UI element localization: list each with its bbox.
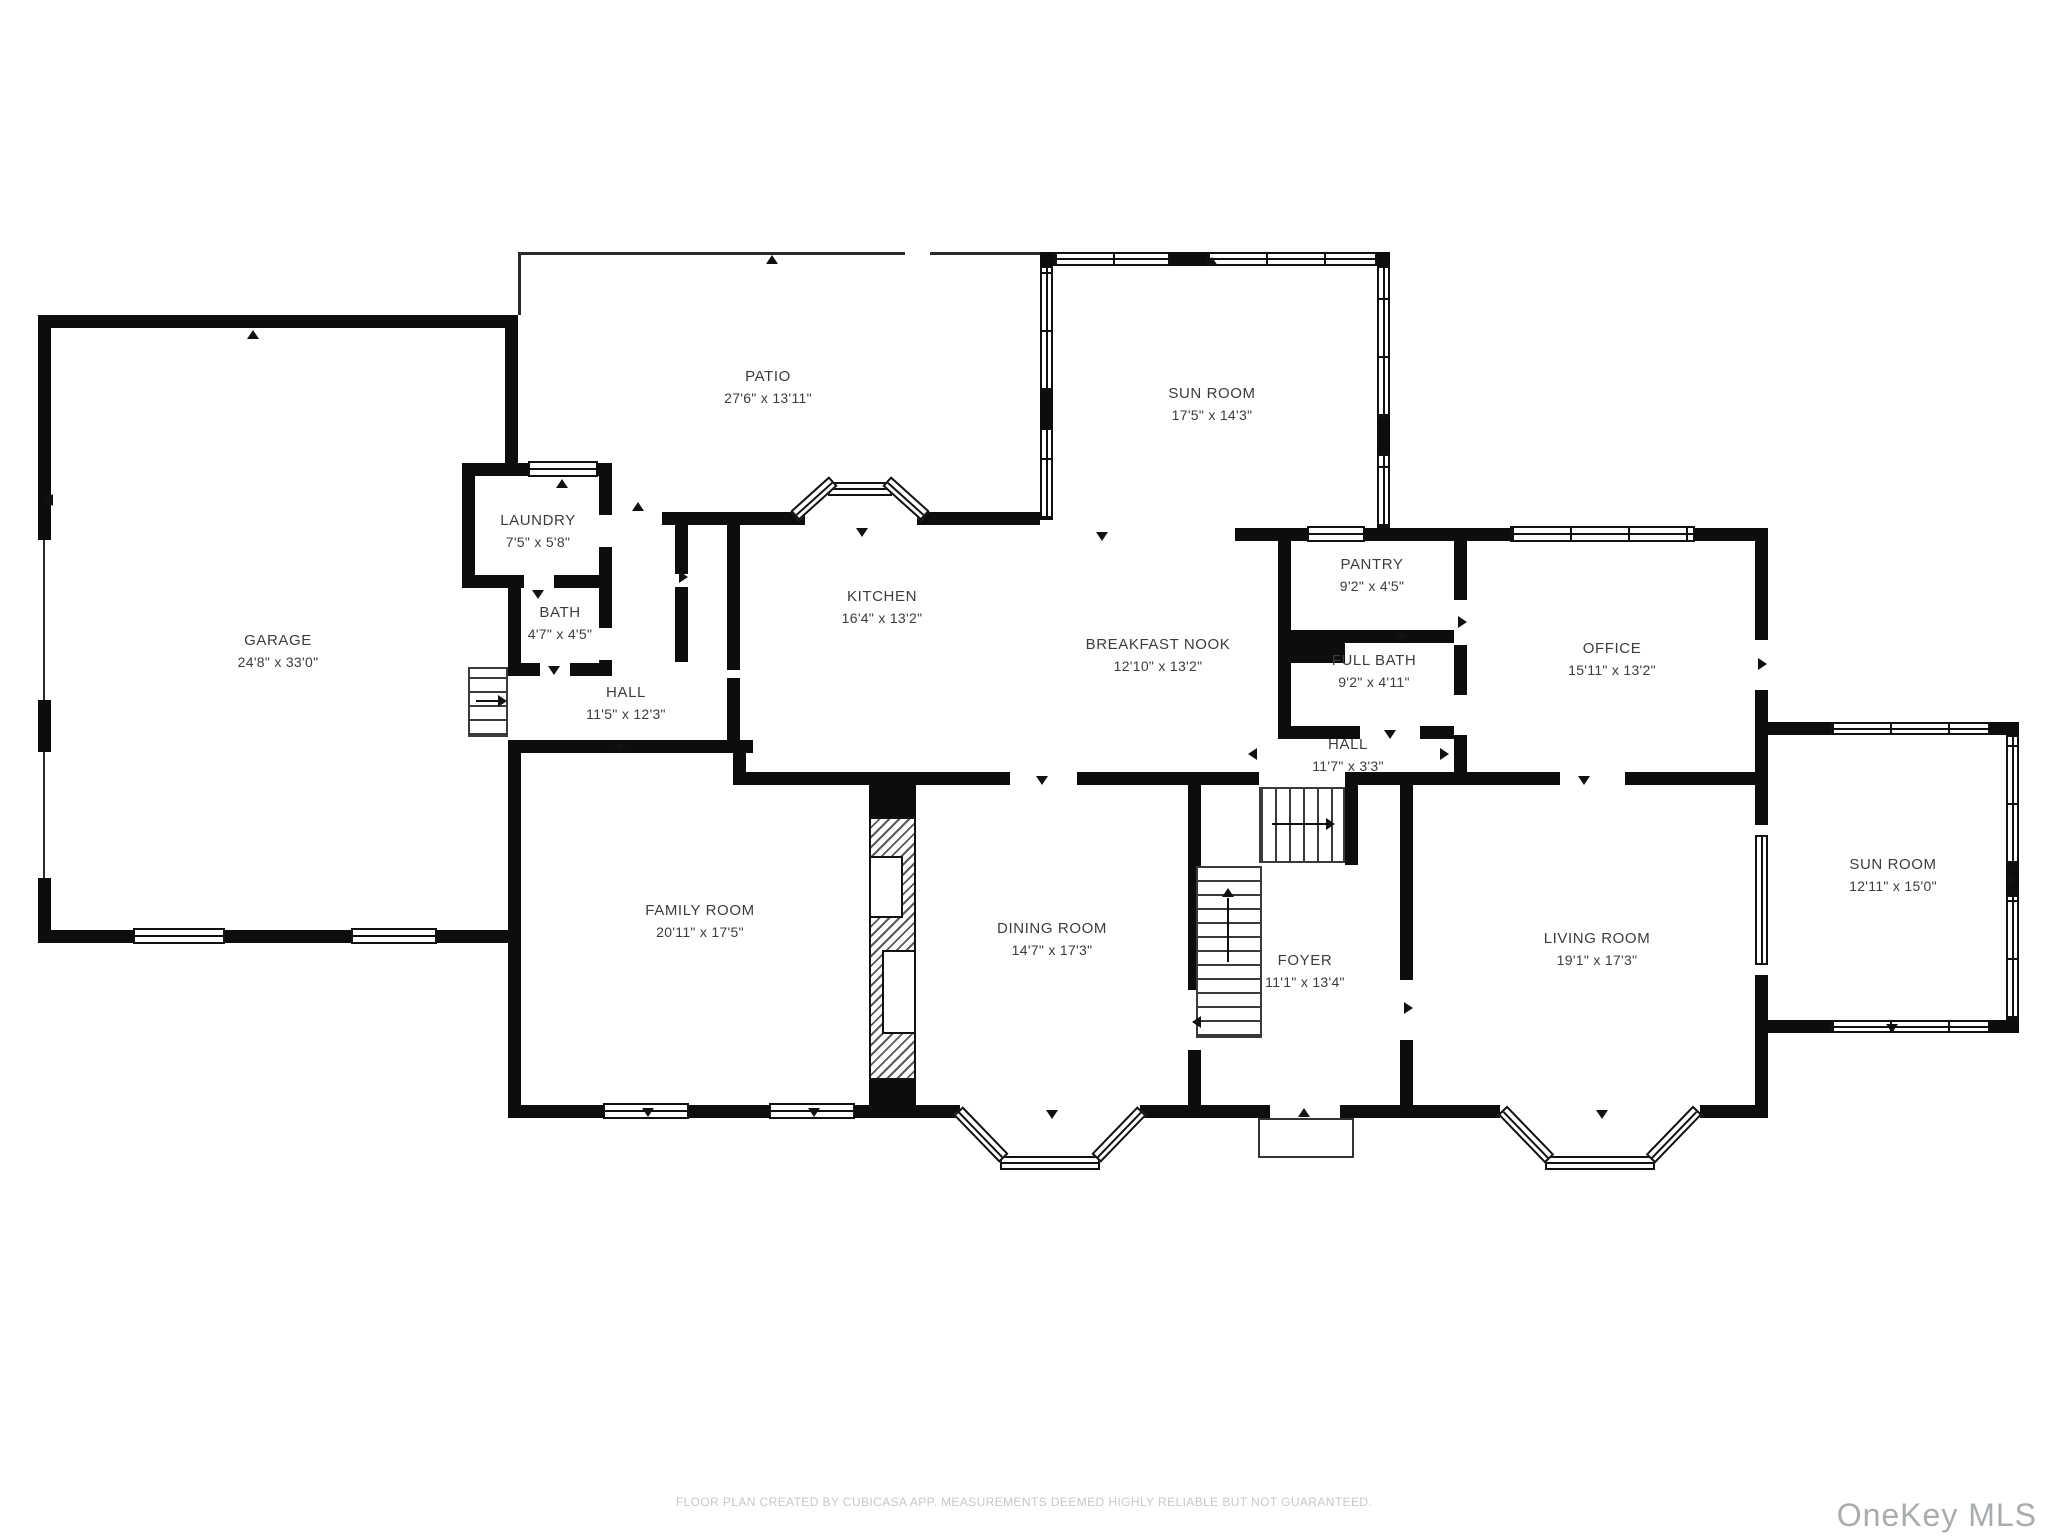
door-marker — [548, 666, 560, 675]
wall — [437, 930, 518, 943]
room-dims: 12'11" x 15'0" — [1849, 878, 1937, 894]
room-name: HALL — [586, 684, 666, 701]
stairs-arrow — [1227, 898, 1229, 962]
office-window — [1510, 526, 1695, 542]
room-name: DINING ROOM — [997, 920, 1107, 937]
wall — [1755, 528, 1768, 640]
wall — [225, 930, 351, 943]
room-dims: 9'2" x 4'11" — [1332, 674, 1417, 690]
door-marker — [856, 528, 868, 537]
wall — [508, 740, 521, 1118]
sunroom-window — [2006, 735, 2019, 865]
room-dims: 27'6" x 13'11" — [724, 390, 812, 406]
patio-edge — [521, 252, 905, 255]
room-label-sunroom-top: SUN ROOM 17'5" x 14'3" — [1168, 385, 1255, 423]
wall — [505, 315, 518, 465]
wall — [462, 463, 528, 476]
wall — [1140, 1105, 1270, 1118]
floor-plan: GARAGE 24'8" x 33'0" PATIO 27'6" x 13'11… — [0, 0, 2048, 1536]
door-marker — [1396, 634, 1408, 643]
room-dims: 7'5" x 5'8" — [500, 534, 576, 550]
wall — [570, 663, 612, 676]
wall — [599, 588, 612, 628]
wall — [462, 463, 475, 588]
wall — [1768, 1020, 1830, 1033]
wall — [1188, 1050, 1201, 1105]
fireplace-box — [869, 856, 903, 918]
wall — [869, 785, 916, 817]
door-marker — [808, 1108, 820, 1117]
wall — [662, 512, 805, 525]
room-label-full-bath: FULL BATH 9'2" x 4'11" — [1332, 652, 1417, 690]
room-name: FOYER — [1265, 952, 1345, 969]
door-marker — [44, 494, 53, 506]
wall-opening-line — [43, 540, 45, 700]
room-name: HALL — [1312, 736, 1384, 753]
sunroom-window — [1830, 1020, 1990, 1033]
room-label-living-room: LIVING ROOM 19'1" x 17'3" — [1544, 930, 1651, 968]
wall — [38, 930, 133, 943]
room-name: KITCHEN — [842, 588, 923, 605]
room-dims: 14'7" x 17'3" — [997, 942, 1107, 958]
wall — [727, 678, 740, 753]
door-marker — [1578, 776, 1590, 785]
stairs-arrow-head — [1326, 818, 1335, 830]
wall — [1040, 252, 1053, 266]
patio-edge — [518, 252, 521, 315]
room-label-garage: GARAGE 24'8" x 33'0" — [238, 632, 319, 670]
wall — [1365, 528, 1510, 541]
room-name: LAUNDRY — [500, 512, 576, 529]
door-marker — [2008, 874, 2017, 886]
wall — [38, 700, 51, 752]
wall — [1040, 392, 1053, 428]
room-dims: 11'1" x 13'4" — [1265, 974, 1345, 990]
room-dims: 16'4" x 13'2" — [842, 610, 923, 626]
room-name: FAMILY ROOM — [645, 902, 754, 919]
wall — [727, 522, 740, 670]
door-marker — [1192, 1016, 1201, 1028]
kitchen-bay-window — [790, 476, 837, 520]
wall — [1755, 690, 1768, 785]
room-dims: 19'1" x 17'3" — [1544, 952, 1651, 968]
room-label-laundry: LAUNDRY 7'5" x 5'8" — [500, 512, 576, 550]
pantry-window — [1307, 526, 1365, 542]
wall — [1377, 252, 1390, 266]
wall — [554, 575, 612, 588]
door-marker — [1096, 532, 1108, 541]
wall — [689, 1105, 769, 1118]
sunroom-window — [1830, 722, 1990, 735]
wall — [1400, 785, 1413, 980]
patio-edge — [930, 252, 1040, 255]
door-marker — [1298, 1108, 1310, 1117]
door-marker — [642, 1108, 654, 1117]
door-marker — [1384, 730, 1396, 739]
wall — [38, 315, 51, 540]
sunroom-window — [2006, 895, 2019, 1020]
wall — [1420, 726, 1454, 739]
room-name: BATH — [528, 604, 593, 621]
wall — [917, 512, 1040, 525]
wall — [1377, 418, 1390, 454]
room-name: SUN ROOM — [1168, 385, 1255, 402]
room-dims: 15'11" x 13'2" — [1568, 662, 1656, 678]
room-name: GARAGE — [238, 632, 319, 649]
door-marker — [1206, 257, 1218, 266]
room-dims: 11'7" x 3'3" — [1312, 758, 1384, 774]
room-dims: 20'11" x 17'5" — [645, 924, 754, 940]
wall — [1768, 722, 1830, 735]
room-dims: 17'5" x 14'3" — [1168, 407, 1255, 423]
door-marker — [614, 744, 626, 753]
sunroom-window — [1053, 252, 1170, 266]
fireplace-box — [882, 950, 916, 1034]
room-label-hall-left: HALL 11'5" x 12'3" — [586, 684, 666, 722]
footer-disclaimer: FLOOR PLAN CREATED BY CUBICASA APP. MEAS… — [0, 1495, 2048, 1509]
wall-opening-line — [43, 752, 45, 878]
room-label-office: OFFICE 15'11" x 13'2" — [1568, 640, 1656, 678]
wall — [1340, 1105, 1500, 1118]
garage-window — [351, 928, 437, 944]
door-marker — [766, 255, 778, 264]
room-label-kitchen: KITCHEN 16'4" x 13'2" — [842, 588, 923, 626]
dining-bay-window — [953, 1106, 1008, 1163]
door-marker — [556, 479, 568, 488]
wall — [1990, 722, 2019, 735]
wall — [1400, 1040, 1413, 1105]
stairs-arrow — [476, 700, 500, 702]
wall — [1454, 645, 1467, 695]
wall — [1278, 541, 1291, 630]
wall — [1077, 772, 1188, 785]
wall — [1235, 528, 1307, 541]
wall — [1625, 772, 1768, 785]
room-label-dining-room: DINING ROOM 14'7" x 17'3" — [997, 920, 1107, 958]
wall — [675, 587, 688, 662]
room-label-breakfast-nook: BREAKFAST NOOK 12'10" x 13'2" — [1086, 636, 1231, 674]
living-bay-window — [1646, 1106, 1703, 1164]
wall — [675, 522, 688, 574]
door-marker — [1404, 1002, 1413, 1014]
sunroom-window — [1040, 428, 1053, 520]
door-marker — [532, 590, 544, 599]
stairs-arrow — [1272, 823, 1328, 825]
door-marker — [679, 571, 688, 583]
wall — [1755, 785, 1768, 825]
living-sunroom-window — [1755, 835, 1768, 965]
wall — [1170, 252, 1206, 266]
door-marker — [1458, 616, 1467, 628]
kitchen-bay-window — [882, 476, 929, 520]
wall — [1188, 772, 1259, 785]
wall — [869, 1080, 916, 1105]
wall — [508, 740, 753, 753]
door-marker — [632, 502, 644, 511]
room-dims: 12'10" x 13'2" — [1086, 658, 1231, 674]
room-dims: 4'7" x 4'5" — [528, 626, 593, 642]
door-marker — [1248, 748, 1257, 760]
room-label-bath: BATH 4'7" x 4'5" — [528, 604, 593, 642]
garage-window — [133, 928, 225, 944]
wall — [1454, 541, 1467, 600]
sunroom-window — [1377, 454, 1390, 528]
wall — [599, 463, 612, 515]
wall — [508, 663, 540, 676]
dining-bay-window — [1091, 1106, 1146, 1163]
sunroom-window — [1377, 266, 1390, 418]
wall — [508, 1105, 603, 1118]
room-name: FULL BATH — [1332, 652, 1417, 669]
dining-bay-window — [1000, 1156, 1100, 1170]
room-label-family-room: FAMILY ROOM 20'11" x 17'5" — [645, 902, 754, 940]
wall — [462, 575, 524, 588]
sunroom-window — [1040, 266, 1053, 392]
wall — [733, 772, 1010, 785]
room-label-foyer: FOYER 11'1" x 13'4" — [1265, 952, 1345, 990]
room-dims: 9'2" x 4'5" — [1340, 578, 1405, 594]
stairs-arrow-head — [1222, 888, 1234, 897]
room-label-sunroom-right: SUN ROOM 12'11" x 15'0" — [1849, 856, 1937, 894]
laundry-window — [528, 461, 598, 477]
room-name: OFFICE — [1568, 640, 1656, 657]
wall — [38, 315, 518, 328]
door-marker — [1046, 1110, 1058, 1119]
wall — [1990, 1020, 2019, 1033]
room-name: PANTRY — [1340, 556, 1405, 573]
door-marker — [1758, 658, 1767, 670]
stairs-arrow-head — [498, 695, 507, 707]
door-marker — [1596, 1110, 1608, 1119]
room-name: SUN ROOM — [1849, 856, 1937, 873]
room-name: PATIO — [724, 368, 812, 385]
living-bay-window — [1498, 1106, 1555, 1164]
room-label-pantry: PANTRY 9'2" x 4'5" — [1340, 556, 1405, 594]
room-dims: 24'8" x 33'0" — [238, 654, 319, 670]
wall — [1755, 975, 1768, 1105]
watermark: OneKey MLS — [1837, 1497, 2037, 1534]
door-marker — [247, 330, 259, 339]
door-marker — [1886, 1024, 1898, 1033]
room-dims: 11'5" x 12'3" — [586, 706, 666, 722]
room-label-hall-right: HALL 11'7" x 3'3" — [1312, 736, 1384, 774]
room-label-patio: PATIO 27'6" x 13'11" — [724, 368, 812, 406]
sunroom-window — [1206, 252, 1377, 266]
front-stoop — [1258, 1118, 1354, 1158]
door-marker — [1036, 776, 1048, 785]
wall — [1278, 663, 1291, 726]
wall — [1700, 1105, 1768, 1118]
room-name: BREAKFAST NOOK — [1086, 636, 1231, 653]
wall — [855, 1105, 960, 1118]
wall — [1345, 785, 1358, 865]
living-bay-window — [1545, 1156, 1655, 1170]
door-marker — [1440, 748, 1449, 760]
wall — [1454, 772, 1560, 785]
room-name: LIVING ROOM — [1544, 930, 1651, 947]
